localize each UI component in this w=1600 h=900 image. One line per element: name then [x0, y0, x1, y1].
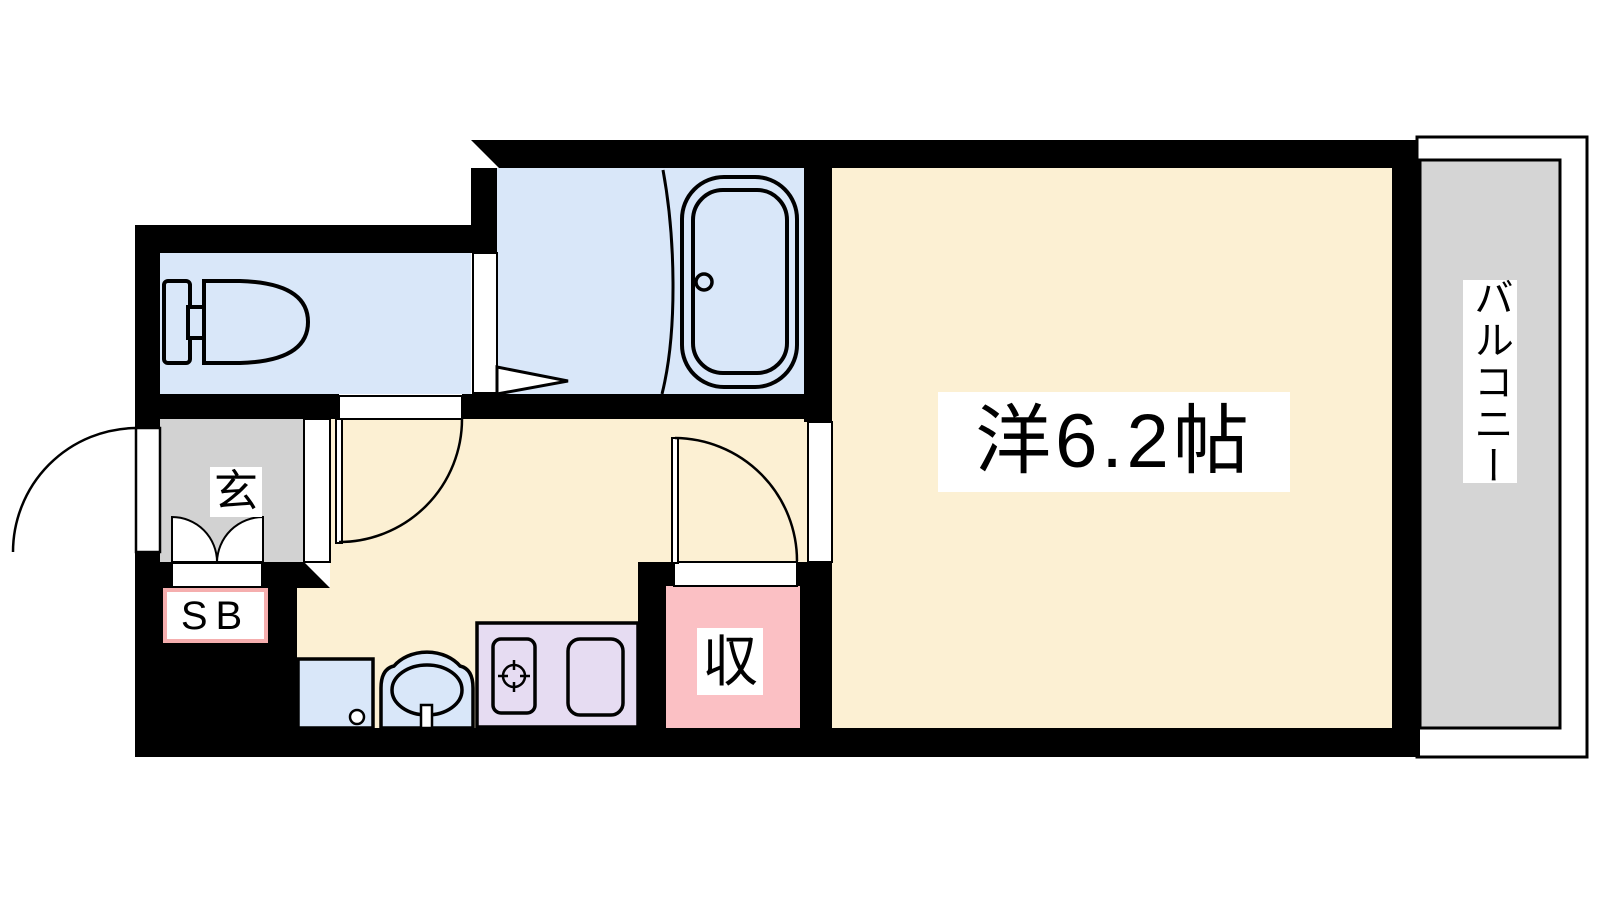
- wall-closet-top-right-piece: [797, 562, 832, 586]
- shoe-box-cabinet: [172, 563, 262, 587]
- floor-plan-drawing: [0, 0, 1600, 900]
- closet-doorway: [674, 562, 797, 586]
- wall-right: [1392, 140, 1418, 757]
- balcony-label: バルコニー: [1463, 280, 1517, 483]
- bathroom-door: [473, 253, 497, 393]
- toilet-bowl: [204, 281, 308, 363]
- wall-top: [471, 140, 1418, 168]
- main-room-label: 洋6.2帖: [938, 392, 1290, 492]
- wall-mainroom-left-lower: [800, 562, 832, 728]
- entrance-label: 玄: [210, 467, 262, 517]
- wall-bottom: [135, 728, 1420, 757]
- wall-under-toilet-left: [135, 394, 339, 419]
- wall-toilet-top: [135, 225, 497, 253]
- shoe-box-label: SB: [163, 588, 268, 643]
- entrance-door-leaf: [136, 428, 160, 552]
- wall-closet-left: [638, 562, 666, 728]
- toilet-doorway: [339, 396, 462, 419]
- toilet-door-leaf: [336, 419, 342, 543]
- wall-under-bath: [462, 394, 832, 419]
- mainroom-doorway: [808, 422, 832, 562]
- toilet-fixture: [164, 281, 308, 363]
- floor-plan-page: 洋6.2帖 バルコニー 玄 SB 収: [0, 0, 1600, 900]
- washer-drain: [350, 710, 364, 724]
- entrance-step: [304, 419, 330, 562]
- closet-door-leaf: [672, 438, 678, 563]
- toilet-joint: [188, 307, 204, 338]
- wall-bath-right: [804, 140, 832, 422]
- closet-label: 収: [697, 628, 763, 695]
- washbasin-faucet: [421, 705, 432, 728]
- bathroom-floor: [497, 168, 804, 394]
